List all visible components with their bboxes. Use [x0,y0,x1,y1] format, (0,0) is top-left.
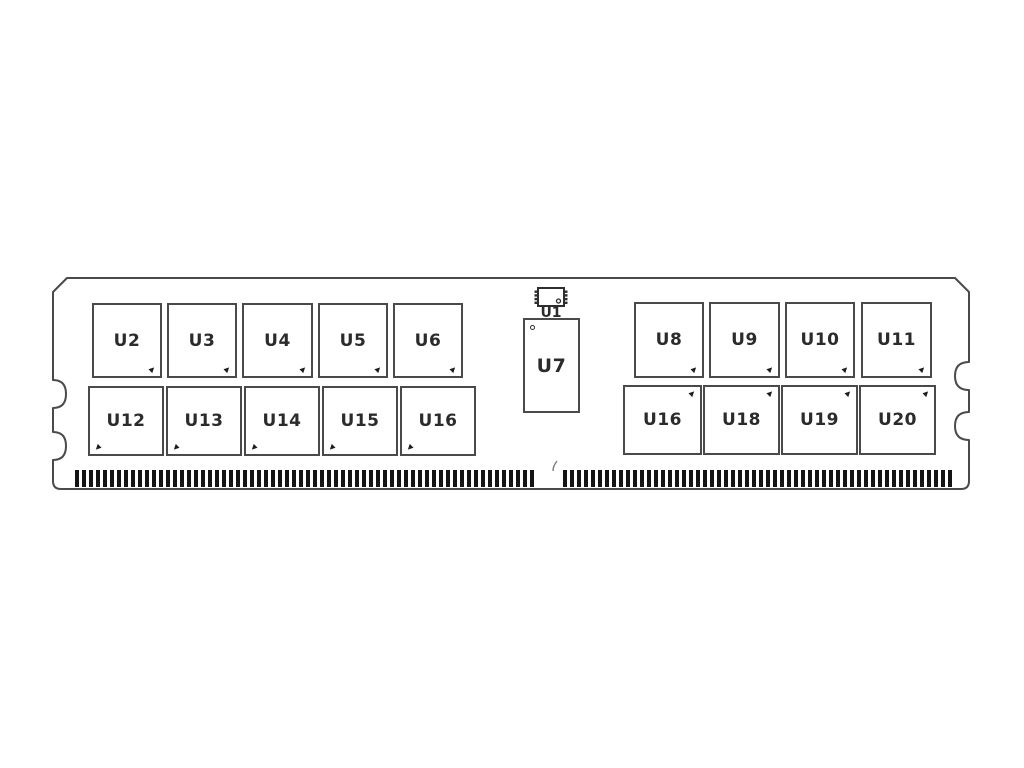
chip-label: U6 [415,331,442,351]
chip-U6: U6 [393,303,463,378]
chip-label: U5 [340,331,367,351]
chip-U5: U5 [318,303,388,378]
pin1-marker-icon [447,363,460,376]
chip-U12: U12 [88,386,164,456]
chip-U1-package [535,288,568,306]
pin1-marker-icon [686,387,699,400]
chip-label: U15 [341,411,380,431]
pin1-dot-icon [557,299,561,303]
chip-label: U18 [722,410,761,430]
chip-U19: U19 [781,385,858,455]
chip-U2: U2 [92,303,162,378]
pin1-marker-icon [247,441,260,454]
chip-U4: U4 [242,303,313,378]
pin1-marker-icon [688,363,701,376]
pin1-dot-icon [530,325,535,330]
chip-label: U13 [185,411,224,431]
pin1-marker-icon [372,363,385,376]
chip-label-U1: U1 [535,305,567,321]
chip-label: U4 [264,331,291,351]
pin1-marker-icon [146,363,159,376]
chip-U16-left: U16 [400,386,476,456]
pin1-marker-icon [920,387,933,400]
pin1-marker-icon [169,441,182,454]
chip-label: U19 [800,410,839,430]
chip-U14: U14 [244,386,320,456]
pin1-marker-icon [325,441,338,454]
chip-U9: U9 [709,302,780,378]
pin1-marker-icon [297,363,310,376]
pin1-marker-icon [764,363,777,376]
chip-label: U16 [643,410,682,430]
chip-U15: U15 [322,386,398,456]
chip-U13: U13 [166,386,242,456]
chip-U18: U18 [703,385,780,455]
chip-U11: U11 [861,302,932,378]
chip-label: U2 [114,331,141,351]
chip-U10: U10 [785,302,855,378]
chip-U16-right: U16 [623,385,702,455]
chip-label: U20 [878,410,917,430]
chip-label: U10 [801,330,840,350]
chip-label: U14 [263,411,302,431]
chip-label: U8 [656,330,683,350]
pin1-marker-icon [221,363,234,376]
pin1-marker-icon [839,363,852,376]
chip-label: U12 [107,411,146,431]
pin1-marker-icon [842,387,855,400]
board-art [0,0,1024,768]
chip-label: U11 [877,330,916,350]
chip-label: U16 [419,411,458,431]
chip-U3: U3 [167,303,237,378]
chip-U8: U8 [634,302,704,378]
pin1-marker-icon [764,387,777,400]
pin1-marker-icon [916,363,929,376]
memory-module-diagram: U2 U3 U4 U5 U6 U12 U13 U14 U15 U16 U7 [0,0,1024,768]
chip-label: U3 [189,331,216,351]
pin1-marker-icon [91,441,104,454]
chip-U7: U7 [523,318,580,413]
chip-label: U9 [731,330,758,350]
chip-U20: U20 [859,385,936,455]
pin1-marker-icon [403,441,416,454]
chip-label: U7 [537,355,567,377]
